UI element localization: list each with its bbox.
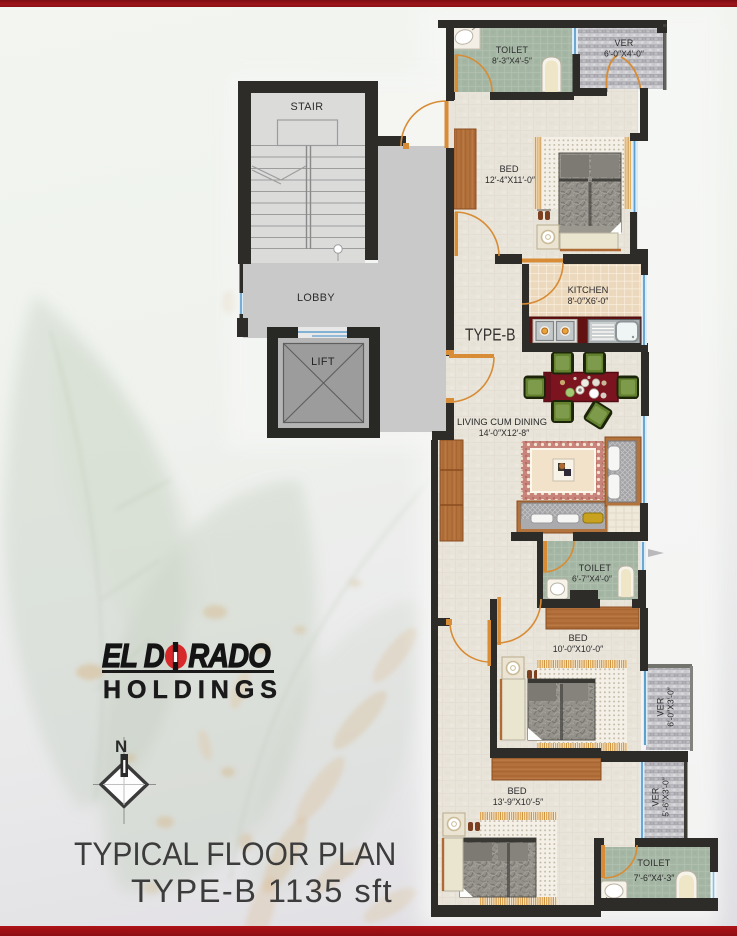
svg-text:14′-0″X12′-8″: 14′-0″X12′-8″: [479, 428, 530, 438]
svg-text:BED: BED: [499, 164, 518, 174]
svg-text:8′-0″X6′-0″: 8′-0″X6′-0″: [568, 296, 609, 306]
svg-text:13′-9″X10′-5″: 13′-9″X10′-5″: [493, 797, 544, 807]
svg-text:LIFT: LIFT: [311, 356, 335, 368]
svg-text:TOILET: TOILET: [496, 45, 529, 55]
svg-text:6′-7″X4′-0″: 6′-7″X4′-0″: [572, 574, 612, 584]
svg-text:STAIR: STAIR: [291, 101, 324, 113]
svg-text:LOBBY: LOBBY: [297, 292, 335, 304]
svg-text:VER: VER: [656, 698, 666, 717]
svg-text:TOILET: TOILET: [637, 858, 670, 868]
svg-text:7′-6″X4′-3″: 7′-6″X4′-3″: [634, 873, 675, 883]
svg-text:BED: BED: [507, 786, 526, 796]
svg-text:5′-6″X3′-0″: 5′-6″X3′-0″: [661, 777, 671, 816]
svg-text:VER: VER: [651, 788, 661, 807]
svg-text:VER: VER: [615, 38, 634, 48]
svg-text:TYPE-B: TYPE-B: [465, 326, 516, 345]
svg-text:BED: BED: [568, 633, 587, 643]
svg-text:10′-0″X10′-0″: 10′-0″X10′-0″: [553, 644, 604, 654]
svg-text:N: N: [115, 737, 127, 756]
svg-text:12′-4″X11′-0″: 12′-4″X11′-0″: [485, 175, 535, 185]
svg-text:LIVING CUM DINING: LIVING CUM DINING: [457, 416, 547, 427]
svg-text:TOILET: TOILET: [579, 563, 612, 573]
svg-text:6′-0″X4′-0″: 6′-0″X4′-0″: [604, 49, 644, 59]
svg-text:KITCHEN: KITCHEN: [568, 285, 609, 295]
svg-text:8′-3″X4′-5″: 8′-3″X4′-5″: [492, 56, 532, 66]
svg-text:6′-0″X3′-0″: 6′-0″X3′-0″: [666, 687, 676, 726]
